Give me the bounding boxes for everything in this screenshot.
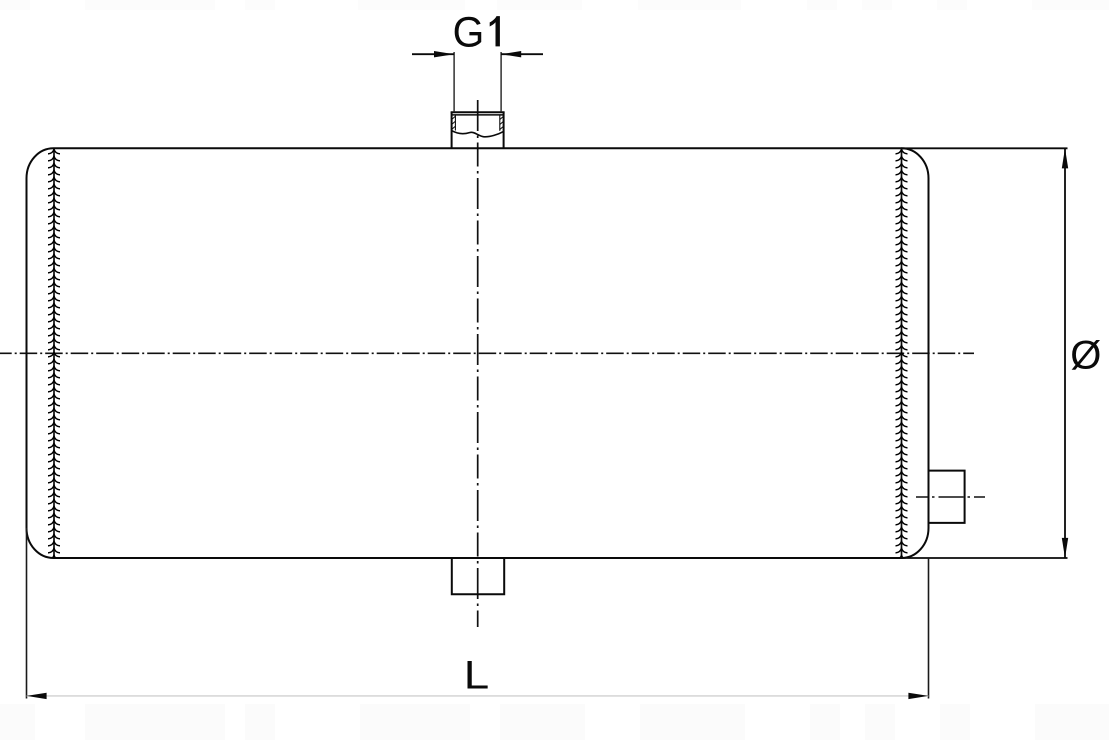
svg-text:Ø: Ø <box>1070 333 1101 377</box>
svg-text:G: G <box>453 7 485 55</box>
svg-text:L: L <box>464 653 489 698</box>
